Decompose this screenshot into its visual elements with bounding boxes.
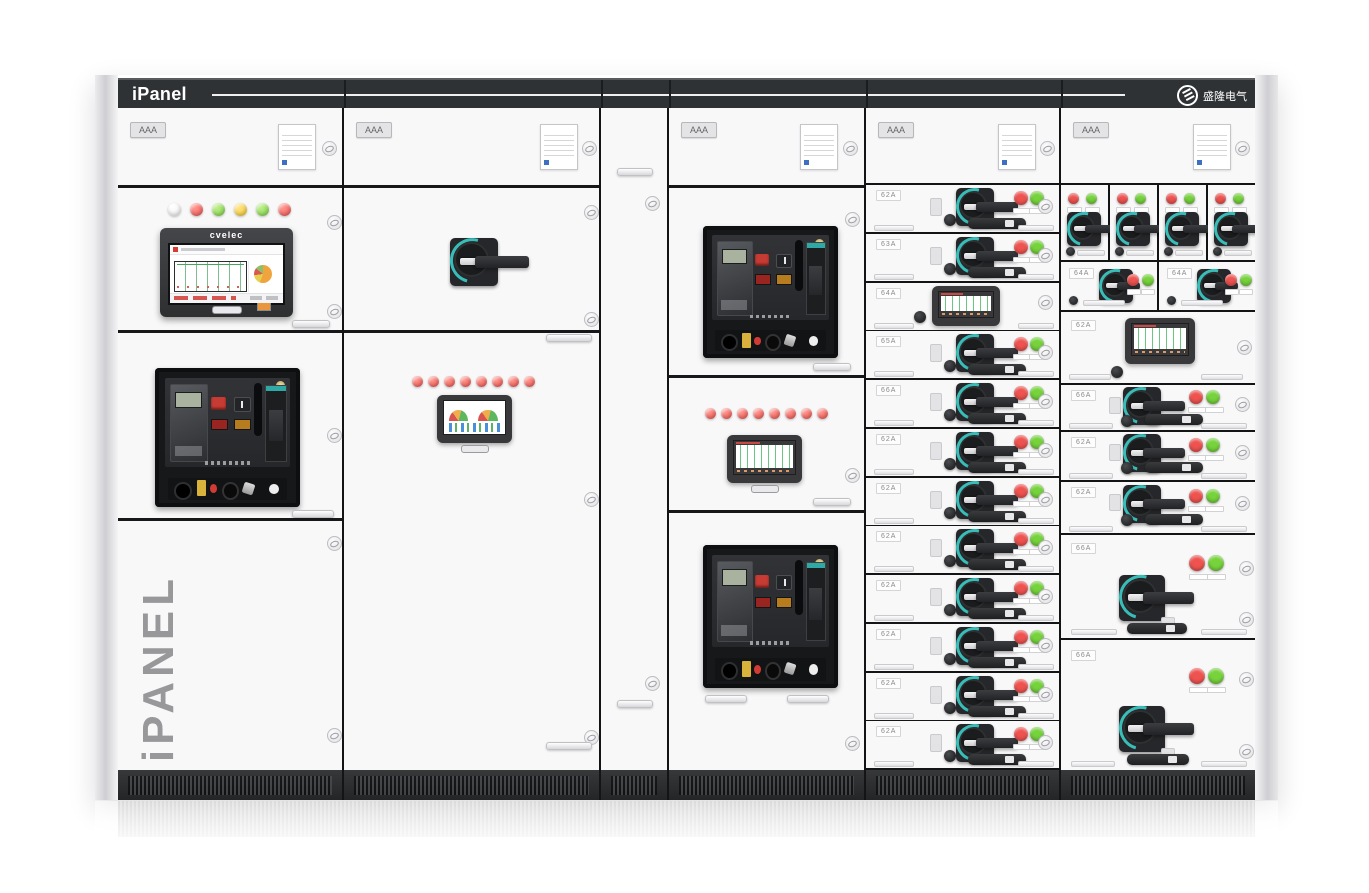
- bay-top-compartment: AAA: [1061, 108, 1255, 183]
- drawer-rating-label: 62A: [1071, 487, 1096, 498]
- band-divider: [669, 80, 671, 110]
- door-latch[interactable]: [1040, 141, 1055, 156]
- socket-icon: [174, 482, 192, 500]
- stop-indicator-button[interactable]: [1014, 581, 1028, 595]
- release-knob[interactable]: [944, 604, 956, 616]
- acb-face: [165, 378, 290, 467]
- nameplate-sticker: [278, 124, 316, 170]
- door-latch[interactable]: [845, 736, 860, 751]
- switchboard-cabinet: iPanel 盛隆电气 AAA: [95, 75, 1278, 800]
- door-latch[interactable]: [845, 468, 860, 483]
- acb-close-button[interactable]: [234, 397, 251, 411]
- relay-lcd: [722, 569, 747, 586]
- company-logo: 盛隆电气: [1177, 85, 1247, 106]
- drawer-rating-label: 62A: [876, 434, 901, 445]
- start-indicator-button[interactable]: [1206, 438, 1220, 452]
- door-handle[interactable]: [813, 498, 851, 506]
- indicator-lamp-red: [524, 376, 535, 387]
- mcc-module: [1061, 185, 1108, 260]
- door-latch[interactable]: [1239, 672, 1254, 687]
- cabinet-side-rail-right: [1255, 75, 1278, 800]
- door-latch[interactable]: [327, 304, 342, 319]
- release-knob[interactable]: [944, 750, 956, 762]
- mcc-drawer-large: 66A: [1061, 535, 1255, 638]
- release-knob[interactable]: [1213, 247, 1222, 256]
- interlock-slot: [930, 734, 942, 752]
- drawer-rail[interactable]: [874, 469, 914, 475]
- stop-indicator-button[interactable]: [1014, 435, 1028, 449]
- hmi-screen[interactable]: [168, 243, 285, 305]
- stop-indicator-button[interactable]: [1215, 193, 1226, 204]
- door-latch[interactable]: [322, 141, 337, 156]
- drawer-rail[interactable]: [1201, 629, 1247, 635]
- hmi-model-tag: [212, 306, 242, 314]
- drawer-rail[interactable]: [1069, 374, 1111, 380]
- indicator-lamp-red: [428, 376, 439, 387]
- acb-marking-row: [750, 641, 792, 645]
- stop-indicator-button[interactable]: [1014, 191, 1028, 205]
- interlock-slot: [1109, 494, 1121, 511]
- drawer-rail[interactable]: [874, 615, 914, 621]
- drawer-rail[interactable]: [1071, 761, 1115, 767]
- release-knob[interactable]: [1164, 247, 1173, 256]
- door-latch[interactable]: [1038, 443, 1053, 458]
- start-indicator-button[interactable]: [1206, 489, 1220, 503]
- release-knob[interactable]: [944, 263, 956, 275]
- stop-indicator-button[interactable]: [1014, 630, 1028, 644]
- acb-marking-row: [750, 315, 792, 318]
- drawer-rail[interactable]: [1018, 518, 1054, 524]
- door-latch[interactable]: [845, 212, 860, 227]
- stop-indicator-button[interactable]: [1225, 274, 1237, 286]
- mcc-drawer: 62A: [866, 721, 1059, 768]
- cabinet-side-rail-left: [95, 75, 118, 800]
- door-latch[interactable]: [327, 728, 342, 743]
- drawer-rail[interactable]: [874, 518, 914, 524]
- bay-2-switch: AAA: [344, 108, 599, 770]
- mcc-module: 64A: [1159, 262, 1255, 310]
- band-divider: [1061, 80, 1063, 110]
- release-knob[interactable]: [1167, 296, 1176, 305]
- indicator-dot: [809, 664, 818, 674]
- compartment-seam: [344, 185, 599, 188]
- mcc-drawer: 62A: [866, 478, 1059, 525]
- release-knob[interactable]: [944, 555, 956, 567]
- bay-label: AAA: [878, 122, 914, 138]
- mcc-drawer: 62A: [866, 429, 1059, 476]
- bay-4-feeder: AAA: [669, 108, 864, 770]
- indicator-lamp-red: [460, 376, 471, 387]
- mcc-drawer: 66A: [1061, 385, 1255, 430]
- relay-lcd: [175, 392, 202, 409]
- acb-open-button[interactable]: [755, 254, 769, 266]
- drawer-rail[interactable]: [874, 664, 914, 670]
- drawer-rating-label: 64A: [1167, 268, 1192, 279]
- drawer-rating-label: 63A: [876, 239, 901, 250]
- rotary-breaker-handle[interactable]: [1099, 269, 1133, 303]
- drawer-rail[interactable]: [874, 420, 914, 426]
- drawer-rail[interactable]: [1018, 615, 1054, 621]
- bay-5-mcc-drawers: AAA 62A: [866, 108, 1059, 770]
- start-indicator-button[interactable]: [1142, 274, 1154, 286]
- drawer-rail[interactable]: [874, 761, 914, 767]
- start-indicator-button[interactable]: [1240, 274, 1252, 286]
- drawer-rail[interactable]: [1175, 250, 1203, 256]
- drawer-rail[interactable]: [1071, 629, 1117, 635]
- meter-screen: [733, 440, 796, 475]
- release-knob[interactable]: [944, 507, 956, 519]
- acb-face: [712, 555, 828, 647]
- lever-icon[interactable]: [241, 482, 255, 496]
- drawer-rail[interactable]: [1018, 274, 1054, 280]
- drawer-rail[interactable]: [1201, 374, 1243, 380]
- meter-model-tag: [751, 485, 779, 493]
- floor-reflection: [95, 801, 1278, 873]
- release-knob[interactable]: [914, 311, 926, 323]
- drawer-rating-label: 64A: [876, 288, 901, 299]
- socket-icon: [721, 662, 738, 680]
- rotary-breaker-handle[interactable]: [1119, 575, 1165, 621]
- bay-label: AAA: [356, 122, 392, 138]
- drawer-rail[interactable]: [1018, 713, 1054, 719]
- stop-indicator-button[interactable]: [1189, 555, 1205, 571]
- door-latch[interactable]: [1038, 248, 1053, 263]
- door-latch[interactable]: [584, 205, 599, 220]
- interlock-slot: [930, 637, 942, 655]
- drawer-rail[interactable]: [1126, 250, 1154, 256]
- hmi-side-panel: [248, 261, 279, 292]
- header-band: iPanel 盛隆电气: [118, 78, 1255, 110]
- drawer-rail[interactable]: [874, 225, 914, 231]
- stop-indicator-button[interactable]: [1014, 484, 1028, 498]
- stop-indicator-button[interactable]: [1189, 489, 1203, 503]
- racking-handle-slot[interactable]: [795, 240, 803, 291]
- stop-indicator-button[interactable]: [1014, 532, 1028, 546]
- drawer-rail[interactable]: [1018, 420, 1054, 426]
- release-knob[interactable]: [1111, 366, 1123, 378]
- lever-icon[interactable]: [783, 662, 796, 676]
- indicator-lamp-red: [721, 408, 732, 419]
- indicator-dot: [269, 484, 279, 494]
- acb-open-button[interactable]: [211, 397, 226, 409]
- interlock-slot: [930, 539, 942, 557]
- door-latch[interactable]: [1038, 295, 1053, 310]
- main-rotary-switch[interactable]: [450, 238, 498, 286]
- socket-icon: [765, 662, 781, 680]
- drawer-rail[interactable]: [1201, 761, 1247, 767]
- position-indicator-window: [234, 419, 251, 430]
- relay-keypad[interactable]: [175, 446, 202, 456]
- release-knob[interactable]: [1121, 514, 1133, 526]
- indicator-lamp-red: [817, 408, 828, 419]
- drawer-rail[interactable]: [1018, 761, 1054, 767]
- hmi-title-bar: [170, 245, 283, 255]
- rotary-breaker-handle[interactable]: [1067, 212, 1101, 246]
- mcc-drawer: 62A: [866, 673, 1059, 720]
- release-knob[interactable]: [1121, 415, 1133, 427]
- door-handle[interactable]: [292, 320, 330, 328]
- compartment-seam: [118, 518, 342, 521]
- door-latch[interactable]: [327, 536, 342, 551]
- drawer-pull-handle[interactable]: [1127, 623, 1187, 634]
- start-indicator-button[interactable]: [1135, 193, 1146, 204]
- stop-indicator-button[interactable]: [1189, 438, 1203, 452]
- compartment-seam: [669, 510, 864, 513]
- racking-handle-slot[interactable]: [795, 560, 803, 615]
- drawer-rating-label: 64A: [1069, 268, 1094, 279]
- drawer-rating-label: 62A: [876, 629, 901, 640]
- drawer-pull-handle[interactable]: [1127, 754, 1189, 765]
- socket-icon: [765, 334, 781, 351]
- acb-close-button[interactable]: [776, 254, 792, 268]
- mcc-drawer-display: 62A: [1061, 312, 1255, 383]
- door-handle[interactable]: [546, 334, 592, 342]
- door-latch[interactable]: [645, 676, 660, 691]
- door-latch[interactable]: [584, 492, 599, 507]
- start-indicator-button[interactable]: [1208, 555, 1224, 571]
- position-indicator-window: [776, 597, 792, 608]
- drawer-pull-handle[interactable]: [1145, 462, 1203, 473]
- stop-indicator-button[interactable]: [1014, 679, 1028, 693]
- protection-relay: [717, 561, 753, 642]
- stop-indicator-button[interactable]: [1068, 193, 1079, 204]
- mcc-drawer: 62A: [866, 526, 1059, 573]
- drawer-rail[interactable]: [1069, 423, 1113, 429]
- button-label-pill: [1189, 574, 1208, 580]
- door-latch[interactable]: [1038, 394, 1053, 409]
- door-latch[interactable]: [1235, 397, 1250, 412]
- drawer-rating-label: 62A: [876, 483, 901, 494]
- button-label-pill: [1205, 506, 1224, 512]
- drawer-rating-label: 62A: [1071, 437, 1096, 448]
- compartment-seam: [669, 185, 864, 188]
- stop-indicator-button[interactable]: [1117, 193, 1128, 204]
- acb-secondary-strip: [168, 478, 287, 500]
- drawer-rail[interactable]: [1018, 323, 1054, 329]
- release-knob[interactable]: [944, 458, 956, 470]
- drawer-rail[interactable]: [874, 713, 914, 719]
- indicator-lamp-green: [212, 203, 225, 216]
- indicator-lamp-red: [190, 203, 203, 216]
- mcc-drawer: 65A: [866, 331, 1059, 378]
- drawer-rail[interactable]: [1181, 300, 1223, 306]
- acb-secondary-strip: [715, 330, 826, 351]
- indicator-lamp-green: [256, 203, 269, 216]
- door-latch[interactable]: [584, 312, 599, 327]
- start-indicator-button[interactable]: [1184, 193, 1195, 204]
- acb-close-button[interactable]: [776, 575, 792, 590]
- meter-bars: [449, 423, 501, 431]
- door-latch[interactable]: [1038, 492, 1053, 507]
- bay-label: AAA: [130, 122, 166, 138]
- indicator-lamp-red: [444, 376, 455, 387]
- stop-indicator-button[interactable]: [1014, 337, 1028, 351]
- acb-rating-module: [806, 562, 827, 641]
- mcc-drawer: 62A: [866, 185, 1059, 232]
- drawer-rating-label: 66A: [1071, 650, 1096, 661]
- door-handle[interactable]: [813, 363, 851, 371]
- relay-keypad[interactable]: [721, 300, 747, 309]
- indicator-dot: [809, 336, 818, 345]
- multimeter-display: [437, 395, 512, 443]
- interlock-slot: [930, 247, 942, 265]
- indicator-lamp-red: [753, 408, 764, 419]
- side-brand-vertical-text: iPANEL: [134, 574, 184, 762]
- drawer-pull-handle[interactable]: [1145, 414, 1203, 425]
- drawer-rail[interactable]: [1018, 566, 1054, 572]
- button-label-pill: [1205, 455, 1224, 461]
- door-latch[interactable]: [1038, 199, 1053, 214]
- stop-indicator-button[interactable]: [1014, 727, 1028, 741]
- drawer-rail[interactable]: [1069, 526, 1113, 532]
- acb-open-button[interactable]: [755, 575, 769, 588]
- door-handle[interactable]: [617, 700, 653, 708]
- rotary-breaker-handle[interactable]: [1197, 269, 1231, 303]
- release-knob[interactable]: [1115, 247, 1124, 256]
- charged-indicator-window: [755, 274, 771, 284]
- compartment-seam: [344, 330, 599, 333]
- door-latch[interactable]: [1239, 612, 1254, 627]
- drawer-rail[interactable]: [1018, 469, 1054, 475]
- door-latch[interactable]: [1038, 345, 1053, 360]
- rotary-breaker-handle[interactable]: [1119, 706, 1165, 752]
- drawer-rail[interactable]: [1201, 526, 1247, 532]
- drawer-rating-label: 62A: [876, 531, 901, 542]
- band-divider: [601, 80, 603, 110]
- release-knob[interactable]: [1069, 296, 1078, 305]
- drawer-rail[interactable]: [874, 274, 914, 280]
- stop-indicator-button[interactable]: [1014, 386, 1028, 400]
- rotary-breaker-handle[interactable]: [1116, 212, 1150, 246]
- trip-button[interactable]: [754, 337, 761, 345]
- indicator-lamp-red: [476, 376, 487, 387]
- door-latch[interactable]: [1235, 141, 1250, 156]
- interlock-slot: [930, 442, 942, 460]
- drawer-pull-handle[interactable]: [1145, 514, 1203, 525]
- button-label-pill: [1189, 687, 1208, 693]
- door-latch[interactable]: [1038, 638, 1053, 653]
- plinth-vent-segment: [118, 770, 342, 800]
- release-knob[interactable]: [944, 409, 956, 421]
- drawer-rail[interactable]: [874, 371, 914, 377]
- drawer-rail[interactable]: [1083, 300, 1125, 306]
- release-knob[interactable]: [944, 653, 956, 665]
- drawer-rail[interactable]: [874, 323, 914, 329]
- door-latch[interactable]: [1239, 744, 1254, 759]
- racking-handle-slot[interactable]: [254, 383, 263, 436]
- trip-button[interactable]: [754, 665, 761, 674]
- interlock-slot: [930, 588, 942, 606]
- door-latch[interactable]: [1038, 589, 1053, 604]
- relay-keypad[interactable]: [721, 625, 747, 635]
- start-indicator-button[interactable]: [1208, 668, 1224, 684]
- drawer-rating-label: 62A: [876, 190, 901, 201]
- air-circuit-breaker: [703, 226, 838, 358]
- plinth-vent-segment: [669, 770, 864, 800]
- interlock-slot: [930, 686, 942, 704]
- drawer-rail[interactable]: [874, 566, 914, 572]
- indicator-lamp-red: [785, 408, 796, 419]
- door-handle[interactable]: [705, 695, 747, 703]
- drawer-rail[interactable]: [1201, 473, 1247, 479]
- start-indicator-button[interactable]: [1086, 193, 1097, 204]
- door-latch[interactable]: [1038, 735, 1053, 750]
- stop-indicator-button[interactable]: [1189, 668, 1205, 684]
- nameplate-sticker: [800, 124, 838, 170]
- warning-tag-icon: [197, 480, 207, 496]
- door-latch[interactable]: [1239, 561, 1254, 576]
- mcc-drawer: 62A: [866, 575, 1059, 622]
- drawer-rail[interactable]: [1077, 250, 1105, 256]
- door-latch[interactable]: [1237, 340, 1252, 355]
- drawer-meter-display: [932, 286, 1000, 326]
- release-knob[interactable]: [1066, 247, 1075, 256]
- drawer-rail[interactable]: [1069, 473, 1113, 479]
- release-knob[interactable]: [944, 702, 956, 714]
- lever-icon[interactable]: [783, 334, 796, 347]
- stop-indicator-button[interactable]: [1127, 274, 1139, 286]
- hmi-touchscreen[interactable]: cvelec: [160, 228, 293, 317]
- start-indicator-button[interactable]: [1206, 390, 1220, 404]
- rotary-breaker-handle[interactable]: [1214, 212, 1248, 246]
- meter-screen: [938, 291, 994, 318]
- stop-indicator-button[interactable]: [1166, 193, 1177, 204]
- acb-secondary-strip: [715, 658, 826, 681]
- door-latch[interactable]: [1038, 687, 1053, 702]
- door-latch[interactable]: [327, 215, 342, 230]
- door-handle[interactable]: [787, 695, 829, 703]
- mcc-module: [1159, 185, 1206, 260]
- door-latch[interactable]: [1235, 496, 1250, 511]
- door-latch[interactable]: [1235, 445, 1250, 460]
- button-label-pill: [1141, 289, 1155, 295]
- hmi-menu-bar[interactable]: [170, 293, 283, 303]
- door-handle[interactable]: [292, 510, 334, 518]
- stop-indicator-button[interactable]: [1189, 390, 1203, 404]
- meter-screen: [443, 400, 506, 435]
- stop-indicator-button[interactable]: [1014, 240, 1028, 254]
- door-latch[interactable]: [1038, 540, 1053, 555]
- drawer-rail[interactable]: [1018, 225, 1054, 231]
- release-knob[interactable]: [1121, 462, 1133, 474]
- acb-rating-module: [265, 385, 287, 462]
- release-knob[interactable]: [944, 360, 956, 372]
- release-knob[interactable]: [944, 214, 956, 226]
- acb-rating-module: [806, 242, 827, 315]
- protection-relay: [717, 241, 753, 316]
- acb-face: [712, 235, 828, 319]
- door-latch[interactable]: [327, 428, 342, 443]
- drawer-rail[interactable]: [1201, 423, 1247, 429]
- door-latch[interactable]: [645, 196, 660, 211]
- nameplate-sticker: [540, 124, 578, 170]
- interlock-slot: [930, 393, 942, 411]
- drawer-rating-label: 65A: [876, 336, 901, 347]
- rotary-breaker-handle[interactable]: [1165, 212, 1199, 246]
- drawer-rail[interactable]: [1224, 250, 1252, 256]
- door-latch[interactable]: [582, 141, 597, 156]
- drawer-rail[interactable]: [1018, 664, 1054, 670]
- plinth-vent-segment: [866, 770, 1059, 800]
- start-indicator-button[interactable]: [1233, 193, 1244, 204]
- door-latch[interactable]: [843, 141, 858, 156]
- door-handle[interactable]: [546, 742, 592, 750]
- door-handle[interactable]: [617, 168, 653, 176]
- drawer-rail[interactable]: [1018, 371, 1054, 377]
- button-label-pill: [1239, 289, 1253, 295]
- trip-button[interactable]: [210, 484, 217, 493]
- indicator-lamp-red: [769, 408, 780, 419]
